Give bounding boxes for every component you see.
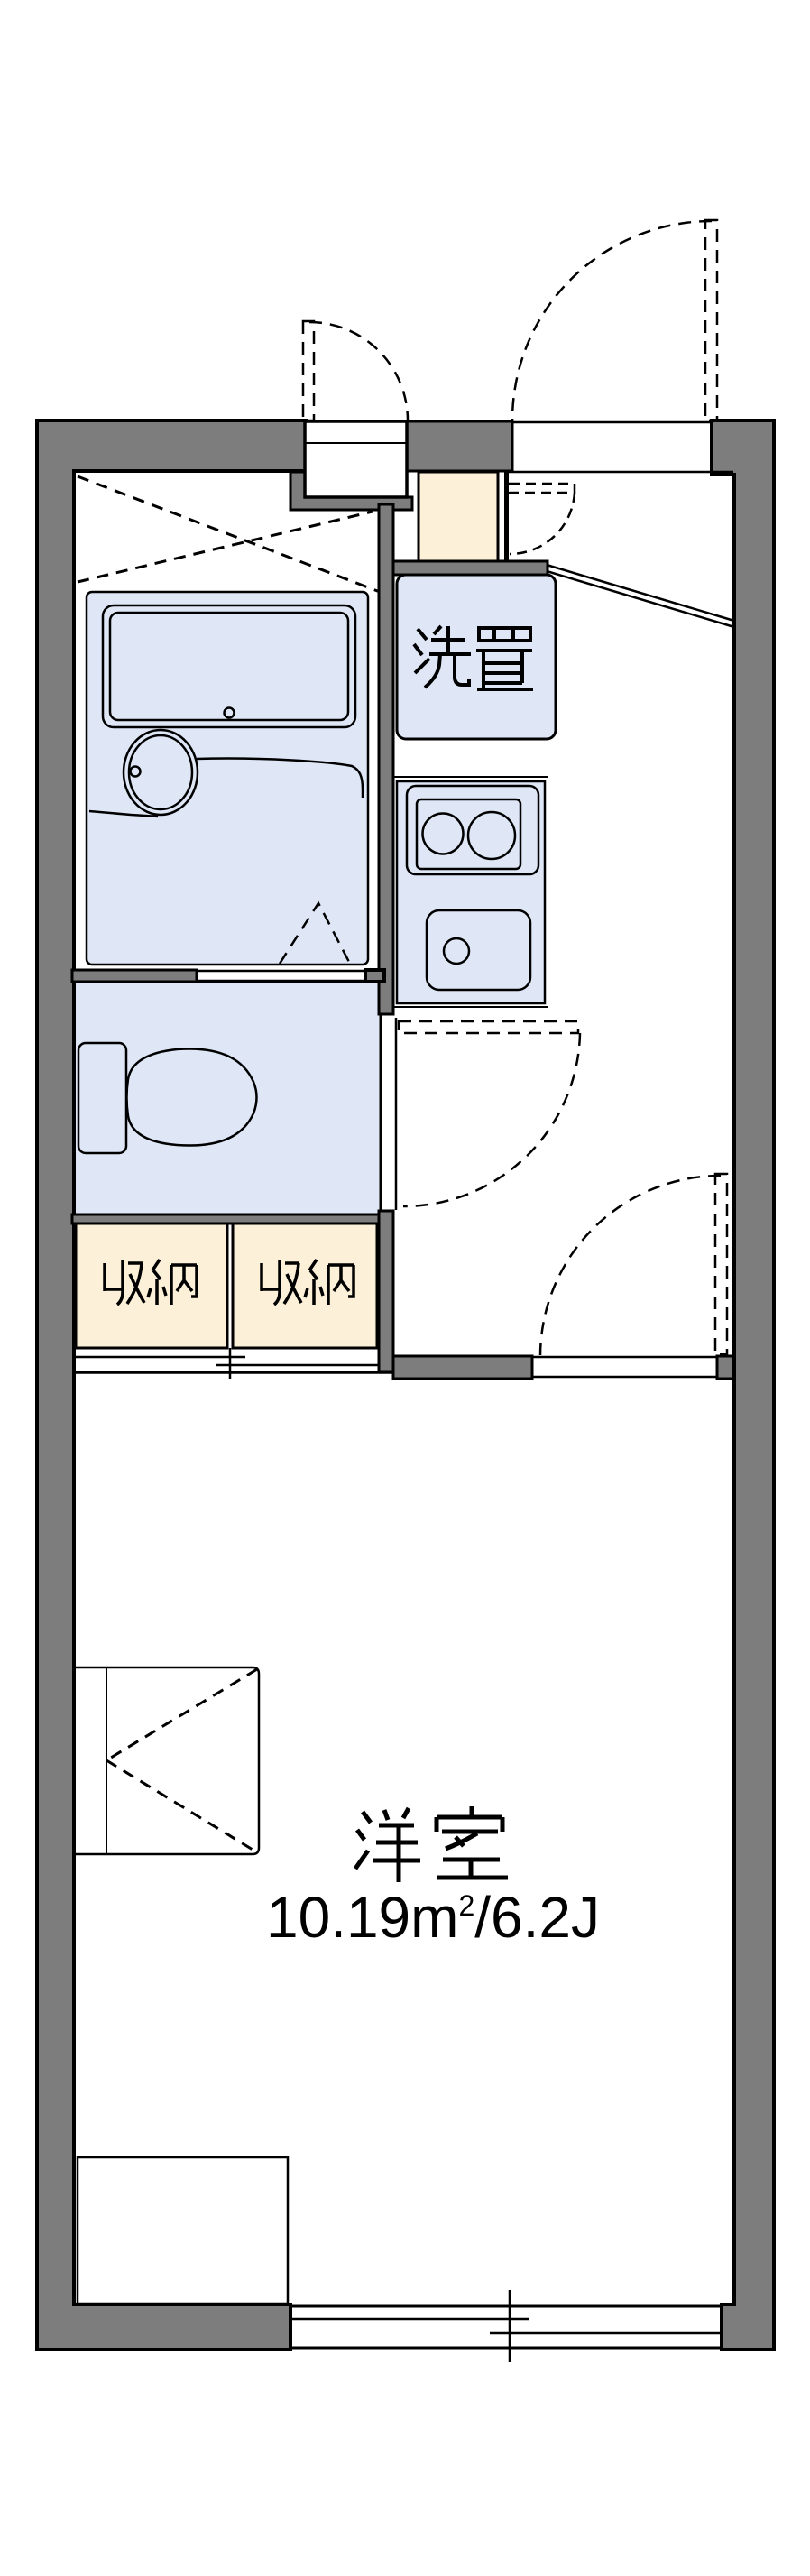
svg-text:10.19m2/6.2J: 10.19m2/6.2J (266, 1885, 600, 1950)
